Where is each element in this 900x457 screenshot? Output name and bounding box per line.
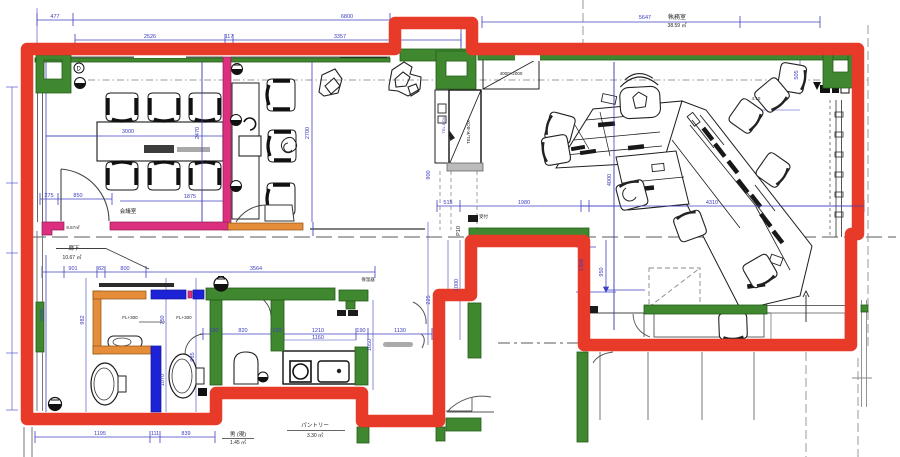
svg-text:男 (現): 男 (現)	[230, 431, 246, 438]
svg-text:1070: 1070	[160, 374, 166, 386]
svg-text:982: 982	[80, 315, 86, 324]
svg-text:1000: 1000	[454, 279, 460, 291]
svg-text:3000: 3000	[122, 129, 134, 135]
svg-text:985: 985	[190, 352, 196, 361]
svg-text:111: 111	[151, 431, 159, 437]
svg-text:850: 850	[73, 193, 82, 199]
svg-text:TEL/R-BOX: TEL/R-BOX	[466, 120, 471, 144]
svg-text:1875: 1875	[184, 194, 196, 200]
svg-text:4000×2000: 4000×2000	[500, 71, 523, 76]
svg-text:82: 82	[98, 266, 104, 272]
svg-text:1210: 1210	[312, 328, 324, 334]
svg-text:3357: 3357	[334, 34, 346, 40]
svg-text:受付: 受付	[479, 213, 488, 220]
svg-text:839: 839	[181, 431, 190, 437]
svg-text:2700: 2700	[305, 127, 311, 139]
svg-text:TEL-BOX: TEL-BOX	[441, 116, 446, 133]
svg-text:3.30 ㎡: 3.30 ㎡	[307, 432, 323, 439]
svg-text:1130: 1130	[394, 328, 406, 334]
svg-text:2470: 2470	[195, 127, 201, 139]
svg-text:1050: 1050	[367, 339, 373, 351]
svg-text:117: 117	[225, 34, 234, 40]
svg-text:保温器: 保温器	[361, 276, 375, 283]
svg-text:225: 225	[426, 295, 432, 304]
svg-text:FL+300: FL+300	[176, 315, 192, 320]
svg-text:執務室: 執務室	[668, 13, 686, 21]
svg-text:8.67㎡: 8.67㎡	[66, 224, 80, 230]
svg-text:1.45 ㎡: 1.45 ㎡	[230, 439, 246, 446]
svg-text:2050: 2050	[40, 309, 46, 321]
svg-text:38.59 ㎡: 38.59 ㎡	[668, 22, 687, 29]
svg-text:505: 505	[794, 70, 800, 79]
svg-text:477: 477	[50, 14, 59, 20]
svg-text:190: 190	[272, 328, 281, 334]
svg-text:4.10: 4.10	[752, 96, 761, 101]
svg-text:FL+300: FL+300	[122, 315, 138, 320]
svg-text:1195: 1195	[94, 431, 106, 437]
svg-text:2526: 2526	[144, 34, 156, 40]
svg-text:515: 515	[443, 200, 452, 206]
svg-text:パントリー: パントリー	[301, 422, 329, 429]
svg-text:P10: P10	[456, 226, 462, 236]
svg-text:901: 901	[68, 266, 77, 272]
svg-text:190: 190	[356, 328, 365, 334]
svg-text:D: D	[77, 67, 82, 73]
svg-text:会議室: 会議室	[120, 207, 137, 215]
svg-text:6800: 6800	[341, 14, 353, 20]
svg-text:5647: 5647	[639, 15, 651, 21]
svg-text:3564: 3564	[250, 266, 262, 272]
svg-text:10.67 ㎡: 10.67 ㎡	[63, 254, 82, 261]
svg-text:950: 950	[599, 267, 605, 276]
svg-text:1980: 1980	[518, 200, 530, 206]
svg-text:750: 750	[160, 315, 166, 324]
svg-text:190: 190	[209, 328, 218, 334]
svg-text:1160: 1160	[312, 335, 324, 341]
svg-text:廊下: 廊下	[68, 244, 80, 252]
svg-text:800: 800	[120, 266, 129, 272]
svg-text:4310: 4310	[706, 200, 718, 206]
svg-text:820: 820	[238, 328, 247, 334]
svg-text:275: 275	[44, 193, 53, 199]
svg-text:900: 900	[426, 170, 432, 179]
svg-text:4000: 4000	[607, 174, 613, 186]
svg-text:1358: 1358	[579, 259, 585, 271]
